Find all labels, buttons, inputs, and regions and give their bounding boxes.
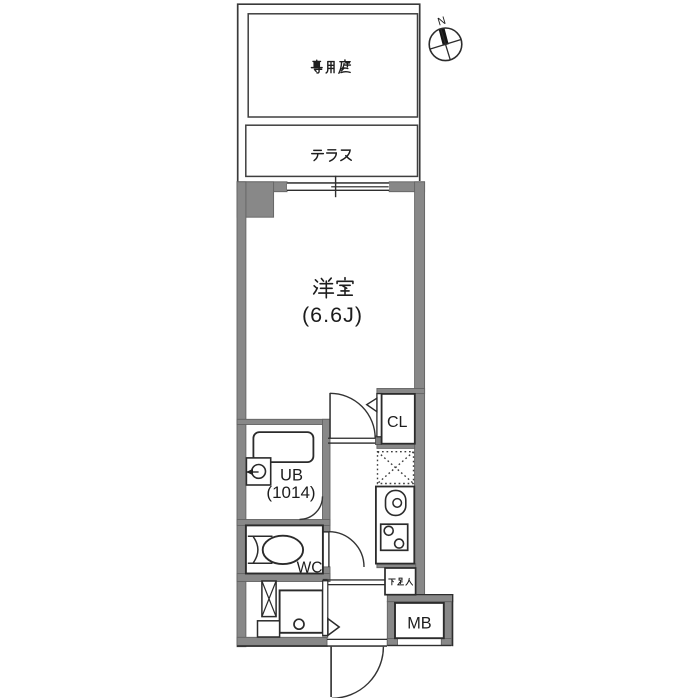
svg-text:UB: UB — [280, 467, 303, 485]
svg-text:CL: CL — [387, 414, 408, 431]
svg-text:(6.6J): (6.6J) — [302, 303, 363, 327]
svg-text:(1014): (1014) — [266, 483, 315, 502]
svg-text:WC: WC — [297, 560, 323, 577]
svg-text:N: N — [436, 15, 447, 29]
svg-text:MB: MB — [407, 615, 431, 633]
